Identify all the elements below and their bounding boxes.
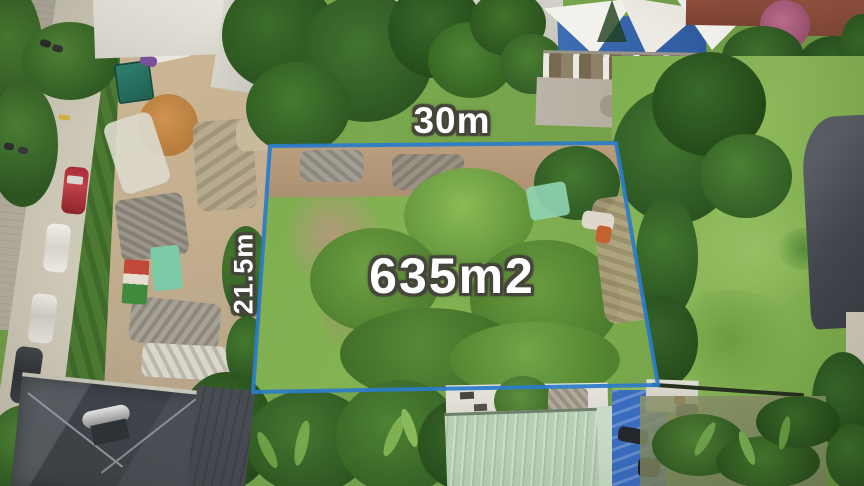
width-label: 30m bbox=[402, 100, 502, 142]
height-label: 21.5m bbox=[229, 226, 260, 322]
area-label: 635m2 bbox=[342, 247, 562, 305]
plot-boundary bbox=[0, 0, 864, 486]
aerial-photo: 30m 21.5m 635m2 bbox=[0, 0, 864, 486]
